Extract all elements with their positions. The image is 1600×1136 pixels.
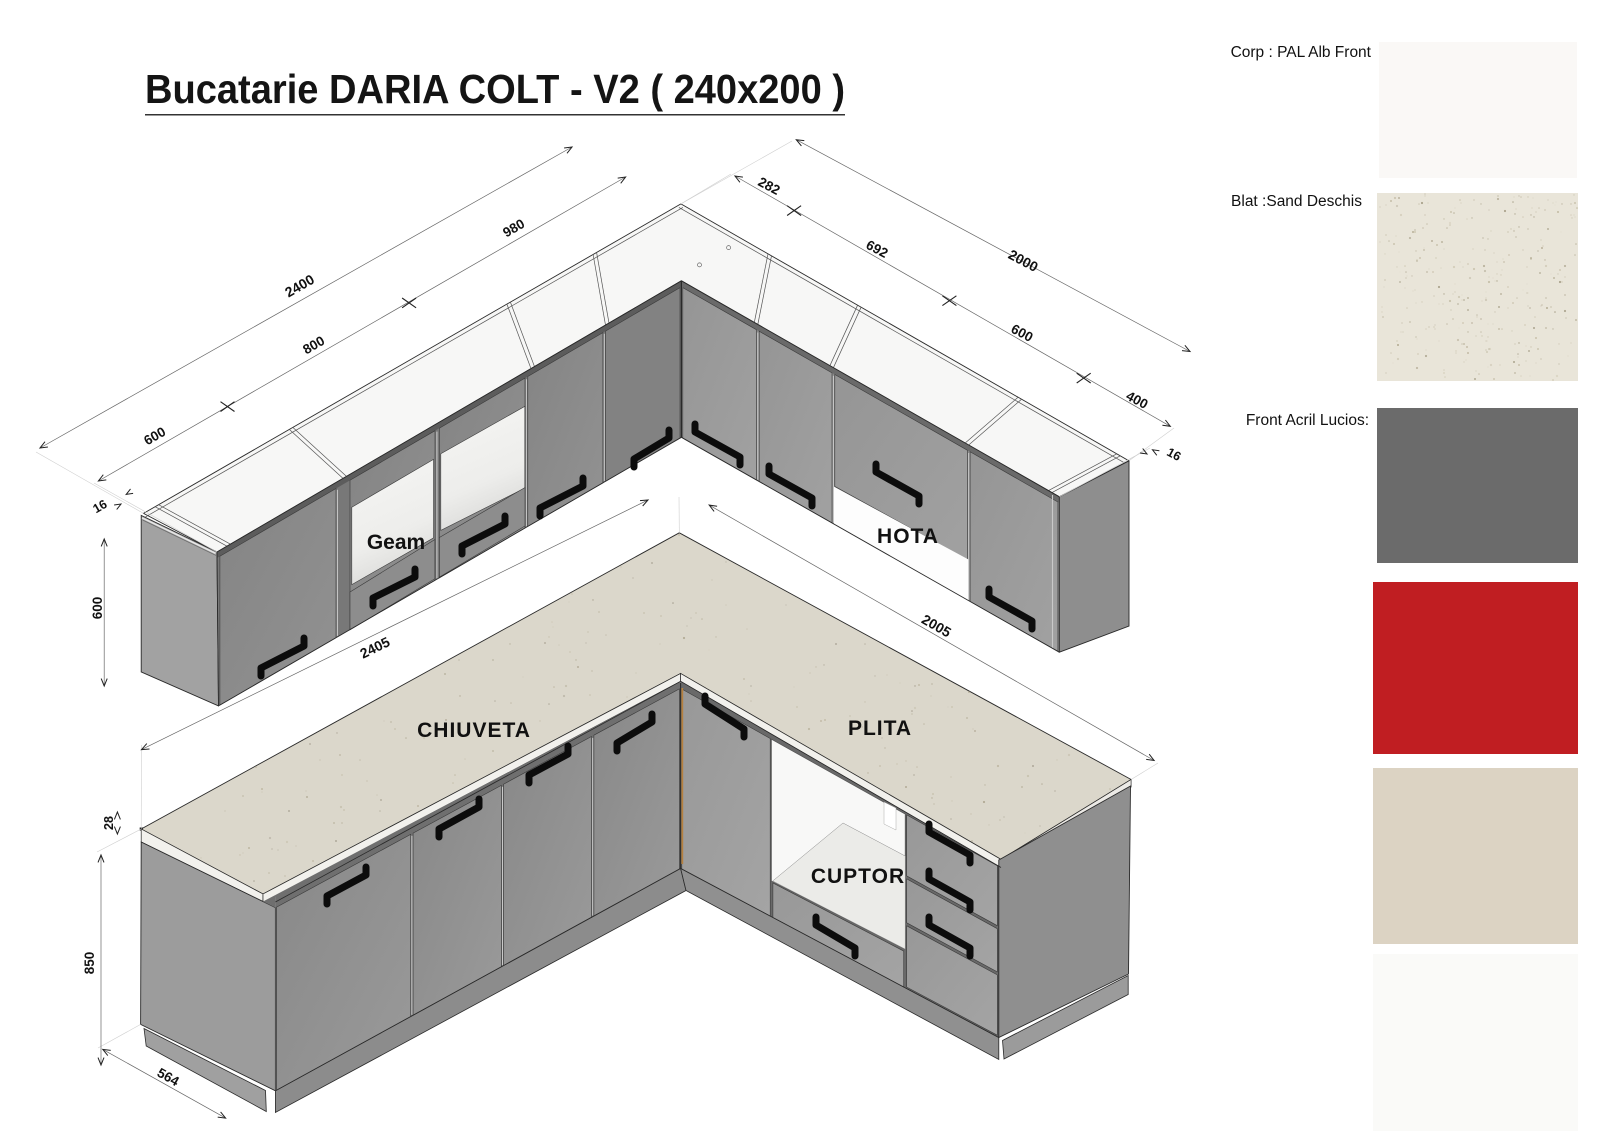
svg-text:Corp : PAL Alb Front: Corp : PAL Alb Front (1231, 44, 1372, 61)
svg-text:CHIUVETA: CHIUVETA (417, 719, 531, 742)
svg-text:Geam: Geam (367, 531, 425, 554)
svg-text:HOTA: HOTA (877, 525, 939, 548)
svg-text:850: 850 (82, 952, 97, 975)
svg-text:PLITA: PLITA (848, 717, 912, 740)
svg-text:28: 28 (102, 816, 116, 830)
svg-text:CUPTOR: CUPTOR (811, 865, 905, 888)
svg-text:Blat :Sand Deschis: Blat :Sand Deschis (1231, 193, 1362, 210)
svg-text:600: 600 (90, 597, 105, 620)
svg-text:Bucatarie DARIA COLT - V2 ( 24: Bucatarie DARIA COLT - V2 ( 240x200 ) (145, 66, 845, 112)
svg-text:Front Acril Lucios:: Front Acril Lucios: (1246, 412, 1369, 429)
